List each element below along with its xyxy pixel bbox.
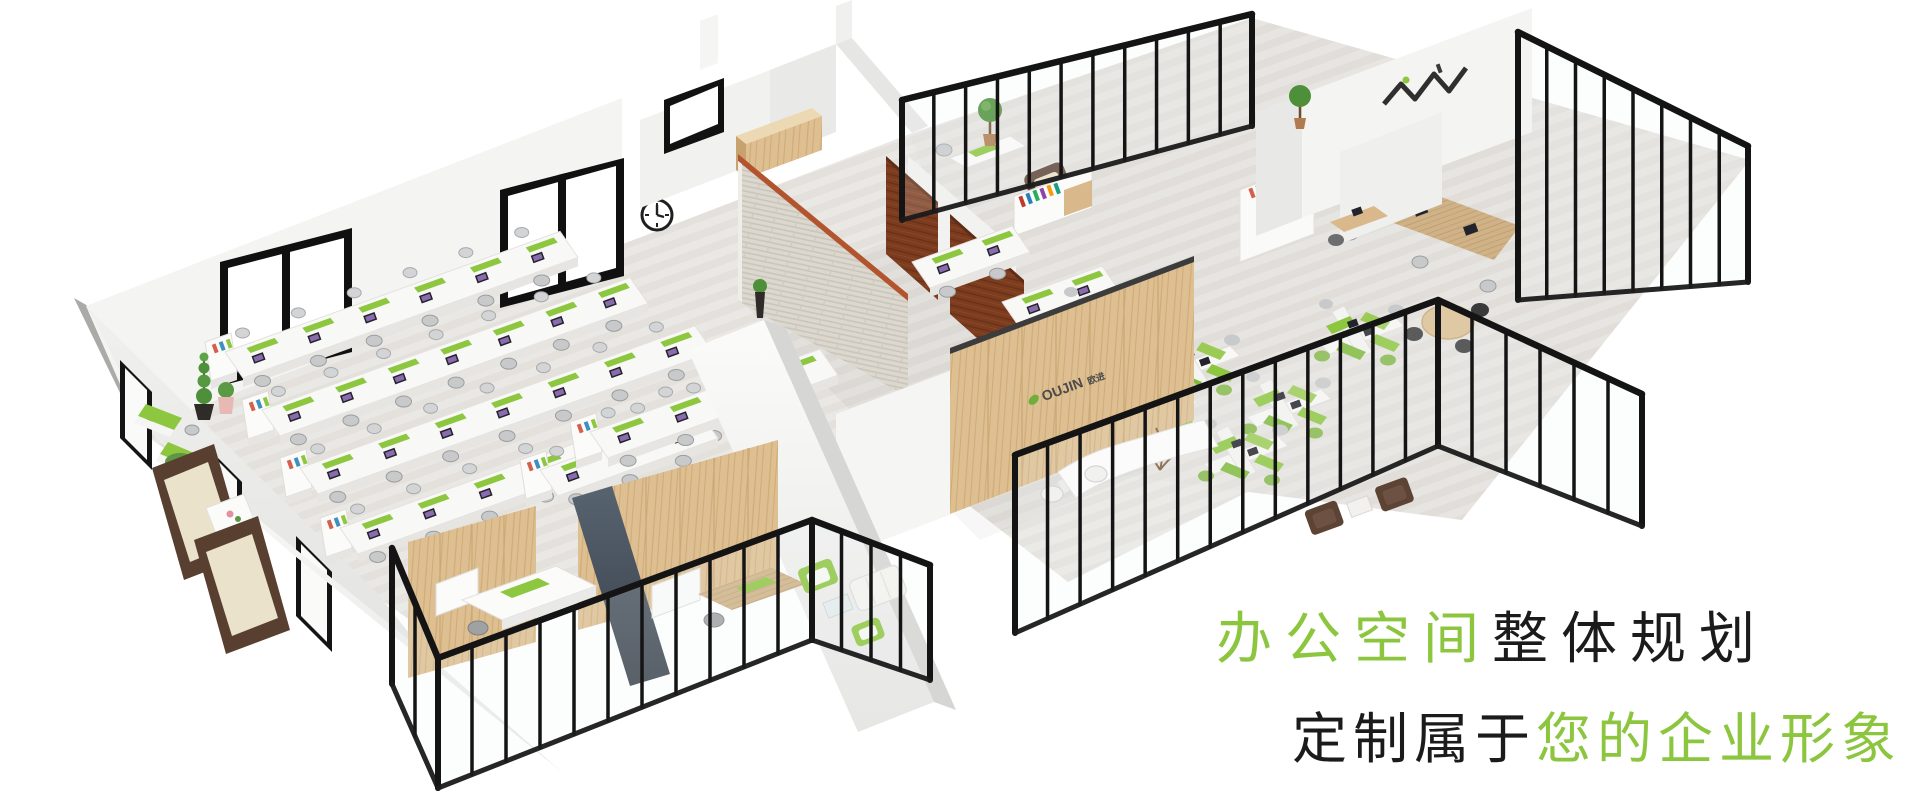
headline-line1-dark-segment: 整体规划 — [1492, 609, 1768, 671]
headline-line2-dark-segment: 定制属于 — [1292, 709, 1536, 770]
office-3d-illustration: OUJIN 欧进 — [0, 0, 1920, 800]
headline-line2-green-segment: 您的企业形象 — [1536, 709, 1902, 770]
pink-potted-plant — [218, 382, 234, 414]
headline-line2: 定制属于您的企业形象 — [1292, 712, 1902, 767]
headline-line1: 办公空间整体规划 — [1216, 612, 1768, 668]
page: OUJIN 欧进 — [0, 0, 1920, 800]
glass-curtain-right — [1518, 32, 1748, 300]
headline-line1-green-segment: 办公空间 — [1216, 609, 1492, 671]
floorplan-illustration: OUJIN 欧进 — [0, 0, 1920, 800]
